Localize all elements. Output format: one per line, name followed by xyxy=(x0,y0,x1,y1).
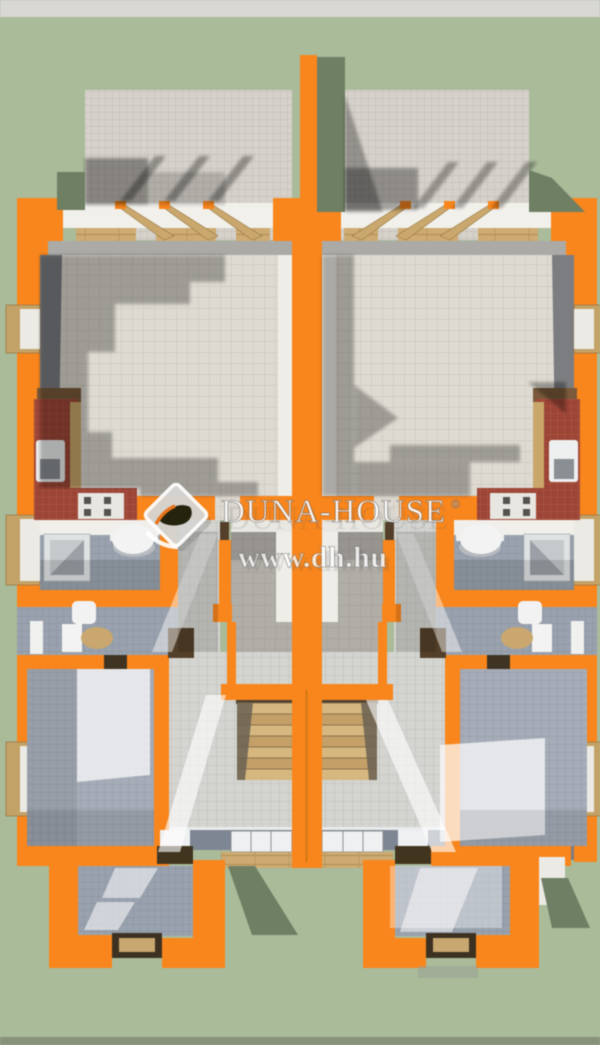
svg-text:®: ® xyxy=(451,497,460,511)
svg-text:www.dh.hu: www.dh.hu xyxy=(238,541,388,574)
svg-text:DUNA-HOUSE: DUNA-HOUSE xyxy=(221,494,447,530)
